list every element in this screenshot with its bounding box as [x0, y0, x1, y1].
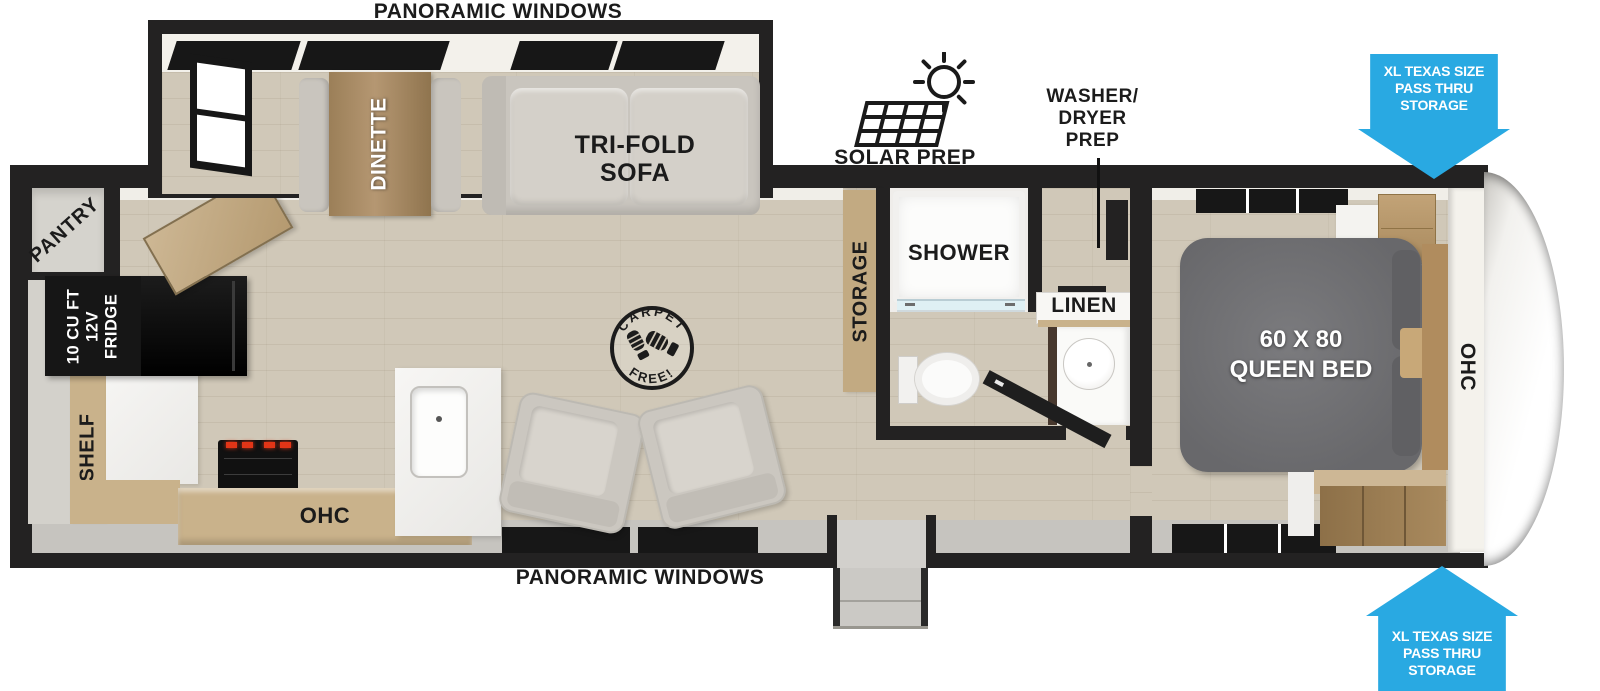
pass-thru-top-label: XL TEXAS SIZE PASS THRU STORAGE [1358, 63, 1510, 113]
bedroom-ohc-label-wrap: OHC [1446, 322, 1488, 412]
bedroom-dresser [1320, 486, 1446, 546]
dinette-bench-left [299, 78, 329, 212]
shower-glass-door [897, 299, 1025, 312]
slideout-window-2 [298, 41, 449, 70]
bathroom-bottom-wall [876, 426, 1066, 440]
window-mullion [1296, 189, 1299, 213]
linen-shelf-edge [1038, 320, 1132, 327]
panoramic-windows-top-label: PANORAMIC WINDOWS [333, 0, 663, 24]
entry-door-frame-left [827, 515, 837, 555]
step-edge [840, 600, 921, 602]
bedroom-dresser-side [1288, 472, 1314, 536]
bedroom-door-opening [1130, 466, 1152, 516]
queen-bed-label: 60 X 80 QUEEN BED [1180, 238, 1422, 472]
pass-thru-arrow-down: XL TEXAS SIZE PASS THRU STORAGE [1358, 54, 1510, 179]
entry-steps [833, 568, 928, 629]
bathroom-left-wall [876, 188, 890, 440]
kitchen-counter-corner [70, 480, 180, 524]
slideout-side-window [190, 54, 252, 177]
carpet-free-badge: CARPET FREE! [608, 304, 696, 392]
entry-opening [837, 520, 926, 568]
shower-handle [905, 303, 915, 306]
sofa-arm [482, 76, 506, 215]
window-mullion [1224, 524, 1227, 553]
cabinet-seam [1381, 228, 1433, 229]
dinette-bench-right [431, 78, 461, 212]
stove-burner [280, 442, 291, 448]
washer-dryer-prep-label: WASHER/ DRYER PREP [1025, 86, 1160, 152]
step-rail [921, 568, 928, 626]
solar-prep-icon [843, 52, 993, 152]
toilet-bowl [914, 352, 980, 406]
bedroom-ohc-label: OHC [1455, 343, 1479, 391]
shower-handle [1005, 303, 1015, 306]
entry-door-frame-right [926, 515, 936, 555]
shower-label: SHOWER [893, 240, 1025, 266]
kitchen-sink [410, 386, 468, 478]
step-rail [833, 568, 840, 626]
pass-thru-arrow-up: XL TEXAS SIZE PASS THRU STORAGE [1366, 566, 1518, 691]
sink-drain [1087, 362, 1092, 367]
accent-chair-1 [497, 390, 648, 536]
dinette-label: DINETTE [368, 97, 392, 190]
shelf-label: SHELF [77, 413, 100, 481]
vanity-sink [1063, 338, 1115, 390]
bedroom-top-window [1196, 189, 1348, 213]
solar-prep-label: SOLAR PREP [810, 146, 1000, 170]
stove [218, 440, 298, 492]
dinette-label-wrap: DINETTE [329, 72, 431, 216]
slideout-window-3 [510, 41, 617, 70]
linen-label: LINEN [1036, 294, 1132, 318]
pantry-label: PANTRY [25, 193, 104, 268]
window-mullion [1246, 189, 1249, 213]
stove-burner [226, 442, 237, 448]
storage-label: STORAGE [850, 240, 873, 342]
front-cap [1484, 172, 1564, 566]
washer-nook-frame-v [1106, 200, 1128, 260]
living-bottom-window-2 [638, 527, 758, 553]
pantry-label-wrap: PANTRY [18, 183, 112, 277]
panoramic-windows-bottom-label: PANORAMIC WINDOWS [505, 566, 775, 590]
stove-grate [224, 474, 292, 475]
window-mullion [1278, 524, 1281, 553]
pass-thru-bottom-label: XL TEXAS SIZE PASS THRU STORAGE [1366, 628, 1518, 678]
stove-grate [224, 458, 292, 459]
fridge-label: 10 CU FT 12V FRIDGE [65, 288, 122, 364]
fridge-label-wrap: 10 CU FT 12V FRIDGE [45, 276, 141, 376]
stove-burner [242, 442, 253, 448]
washer-dryer-callout-line [1097, 158, 1100, 248]
slideout-window-4 [613, 41, 724, 70]
floorplan: PANTRY SHELF 10 CU FT 12V FRIDGE OHC [0, 0, 1600, 691]
cabinet-seam [1362, 486, 1364, 546]
trifold-sofa-label: TRI-FOLD SOFA [535, 132, 735, 187]
fridge-handle [232, 281, 235, 371]
window-pane [197, 63, 245, 116]
cabinet-seam [1404, 486, 1406, 546]
stove-burner [264, 442, 275, 448]
kitchen-counter-left [106, 372, 198, 484]
window-pane [197, 115, 245, 168]
door-handle [994, 379, 1004, 387]
sink-drain [436, 416, 442, 422]
